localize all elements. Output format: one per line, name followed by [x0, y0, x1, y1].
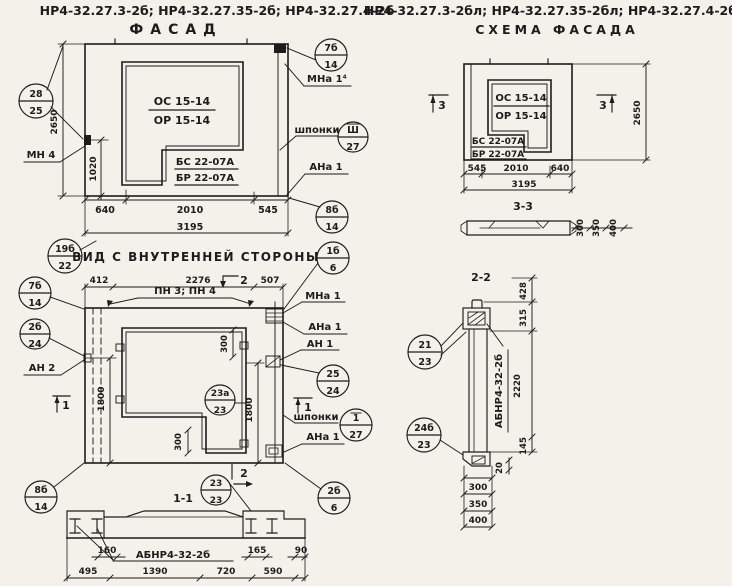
- mna-edge-detail: [266, 302, 283, 323]
- callout-2b-24: 2б 24: [20, 319, 84, 356]
- dim-1020: 1020: [89, 156, 99, 181]
- dim-720: 720: [217, 567, 236, 577]
- svg-text:23: 23: [417, 440, 430, 451]
- dim-412: 412: [90, 276, 109, 286]
- svg-text:2б: 2б: [28, 322, 42, 333]
- callout-24b-23: 24б 23: [407, 418, 463, 455]
- dim-400-s22: 400: [469, 516, 488, 526]
- svg-text:7б: 7б: [324, 43, 338, 54]
- svg-text:24: 24: [28, 339, 42, 350]
- section-3-3-title: 3-3: [513, 200, 533, 213]
- dim-350-s22: 350: [469, 500, 488, 510]
- schema-mark-os: ОС 15-14: [495, 93, 546, 104]
- dim-145: 145: [519, 437, 529, 455]
- dim-165: 165: [248, 546, 267, 556]
- section-2-2: 2-2 АБНР4-32-2б 428 315 2220 145 20: [407, 271, 537, 530]
- an1-edge-detail: [266, 356, 280, 367]
- label-abnr-vertical: АБНР4-32-2б: [493, 354, 505, 428]
- callout-8b-14-facade: 8б 14: [289, 198, 348, 233]
- block-mark-bs: БС 22-07А: [176, 157, 234, 168]
- dim-2650-schema: 2650: [633, 100, 643, 125]
- label-mn4: МН 4: [27, 150, 56, 161]
- dim-1390: 1390: [142, 567, 167, 577]
- dim-640-facade: 640: [95, 205, 115, 216]
- svg-text:1: 1: [353, 413, 360, 424]
- dim-495: 495: [79, 567, 98, 577]
- label-shponki-facade: шпонки: [294, 125, 339, 136]
- schema-drawing: ОС 15-14 ОР 15-14 БС 22-07А БР 22-07А 3 …: [429, 59, 650, 193]
- svg-text:14: 14: [28, 298, 42, 309]
- dim-400-s33: 400: [609, 219, 619, 237]
- dim-545-facade: 545: [258, 205, 278, 216]
- schema-title: СХЕМА ФАСАДА: [475, 22, 639, 37]
- dim-20: 20: [495, 462, 505, 474]
- section-2-2-title: 2-2: [471, 271, 491, 284]
- block-mark-or: ОР 15-14: [154, 114, 211, 127]
- callout-25-24: 25 24: [281, 365, 349, 397]
- svg-text:25: 25: [326, 369, 339, 380]
- dim-300-top: 300: [220, 335, 230, 353]
- callout-23a-23: 23а 23: [205, 385, 246, 416]
- dim-300-s22: 300: [469, 483, 488, 493]
- label-mna1-inner: МНа 1: [305, 291, 341, 302]
- svg-text:27: 27: [346, 142, 359, 153]
- svg-text:24б: 24б: [414, 423, 434, 434]
- dim-428: 428: [519, 282, 529, 300]
- lifting-anchor-mark: [274, 44, 286, 53]
- mn4-anchor: [84, 135, 91, 145]
- svg-text:28: 28: [29, 89, 43, 100]
- svg-text:23а: 23а: [211, 389, 230, 399]
- anchor-ibeam-icons: [70, 519, 277, 533]
- dim-3195-schema: 3195: [511, 180, 536, 190]
- svg-text:1: 1: [62, 399, 70, 412]
- ana1-edge-detail: [266, 445, 282, 457]
- dim-640-schema: 640: [551, 164, 570, 174]
- svg-text:8б: 8б: [34, 485, 48, 496]
- callout-8b-14-inner: 8б 14: [25, 463, 84, 513]
- dim-2276: 2276: [185, 276, 210, 286]
- dim-300-bottom: 300: [174, 433, 184, 451]
- svg-text:6: 6: [331, 503, 338, 514]
- inner-view-drawing: 19б 22 ВИД С ВНУТРЕННЕЙ СТОРОНЫ 412 2276…: [19, 239, 372, 514]
- svg-text:22: 22: [58, 261, 71, 272]
- dim-507: 507: [261, 276, 280, 286]
- callout-2b-6: 2б 6: [285, 463, 350, 514]
- dim-2650-facade: 2650: [50, 109, 60, 134]
- right-models-header: НР4-32.27.3-2бл; НР4-32.27.35-2бл; НР4-3…: [364, 3, 732, 18]
- dim-1800-right: 1800: [245, 397, 255, 422]
- label-shponki-inner: шпонки: [293, 412, 338, 423]
- label-abnr4-32-2b: АБНР4-32-2б: [136, 549, 210, 561]
- callout-sh-27: Ш 27: [338, 122, 368, 153]
- dim-300-s33: 300: [576, 219, 586, 237]
- drawing-canvas: НР4-32.27.3-2б; НР4-32.27.35-2б; НР4-32.…: [0, 0, 732, 586]
- svg-text:3: 3: [599, 99, 607, 112]
- svg-text:2: 2: [240, 274, 248, 287]
- svg-text:3: 3: [438, 99, 446, 112]
- section-1-1-title: 1-1: [173, 492, 193, 505]
- svg-text:14: 14: [325, 222, 339, 233]
- svg-text:27: 27: [349, 430, 362, 441]
- dim-2010-schema: 2010: [503, 164, 528, 174]
- svg-text:23: 23: [418, 357, 431, 368]
- section-3-3: 3-3 300 350 400: [461, 200, 632, 237]
- callout-7b-14-inner: 7б 14: [19, 277, 84, 309]
- label-an2: АН 2: [29, 363, 56, 374]
- svg-text:2: 2: [240, 467, 248, 480]
- dim-160: 160: [98, 546, 117, 556]
- block-mark-br: БР 22-07А: [176, 173, 234, 184]
- svg-text:14: 14: [34, 502, 48, 513]
- label-an1: АН 1: [307, 339, 334, 350]
- svg-text:25: 25: [29, 106, 42, 117]
- dim-315: 315: [519, 309, 529, 327]
- callout-1-27: 1 27: [340, 409, 372, 441]
- svg-text:23: 23: [214, 406, 227, 416]
- section-flag-3-right: 3: [597, 95, 616, 112]
- callout-23-23: 23 23: [201, 475, 251, 511]
- schema-mark-or: ОР 15-14: [495, 111, 546, 122]
- callout-7b-14-facade: 7б 14: [287, 39, 347, 71]
- dim-2220: 2220: [513, 374, 523, 398]
- svg-text:23: 23: [210, 496, 223, 506]
- block-mark-os: ОС 15-14: [154, 95, 211, 108]
- dim-545-schema: 545: [468, 164, 487, 174]
- svg-text:2б: 2б: [327, 486, 341, 497]
- svg-text:21: 21: [418, 340, 431, 351]
- svg-text:8б: 8б: [325, 205, 339, 216]
- section-1-1: 1-1 АБНР4-32-2б 160 165 90 495 1390 720 …: [64, 492, 308, 581]
- section-flag-2-bottom: 2: [232, 464, 253, 487]
- section-flag-2-top: 2: [220, 274, 248, 288]
- facade-title: ФАСАД: [129, 22, 222, 38]
- label-mna1-4: МНа 1⁴: [307, 74, 347, 85]
- svg-text:6: 6: [330, 263, 337, 274]
- svg-text:24: 24: [326, 386, 340, 397]
- label-ana1-facade: АНа 1: [309, 162, 342, 173]
- left-models-header: НР4-32.27.3-2б; НР4-32.27.35-2б; НР4-32.…: [40, 3, 395, 18]
- callout-21-23: 21 23: [408, 323, 466, 369]
- schema-mark-bs: БС 22-07А: [472, 137, 524, 147]
- dim-3195-facade: 3195: [177, 222, 203, 233]
- label-ana1-bottom: АНа 1: [306, 432, 339, 443]
- dim-350-s33: 350: [592, 219, 602, 237]
- facade-drawing: ОС 15-14 ОР 15-14 БС 22-07А БР 22-07А 26…: [19, 39, 368, 236]
- blueprint-page: НР4-32.27.3-2б; НР4-32.27.35-2б; НР4-32.…: [0, 0, 732, 586]
- svg-text:1б: 1б: [326, 246, 340, 257]
- section-flag-3-left: 3: [429, 95, 448, 112]
- dim-1800-left: 1800: [97, 386, 107, 411]
- dim-2010-facade: 2010: [177, 205, 204, 216]
- svg-text:Ш: Ш: [347, 125, 359, 136]
- svg-text:14: 14: [324, 60, 338, 71]
- label-ana1-top: АНа 1: [308, 322, 341, 333]
- svg-text:23: 23: [210, 479, 223, 489]
- inner-view-title: ВИД С ВНУТРЕННЕЙ СТОРОНЫ: [72, 249, 320, 264]
- svg-text:7б: 7б: [28, 281, 42, 292]
- dim-590: 590: [264, 567, 283, 577]
- section-flag-1-left: 1: [53, 396, 70, 412]
- label-pn3-pn4: ПН 3; ПН 4: [154, 286, 216, 297]
